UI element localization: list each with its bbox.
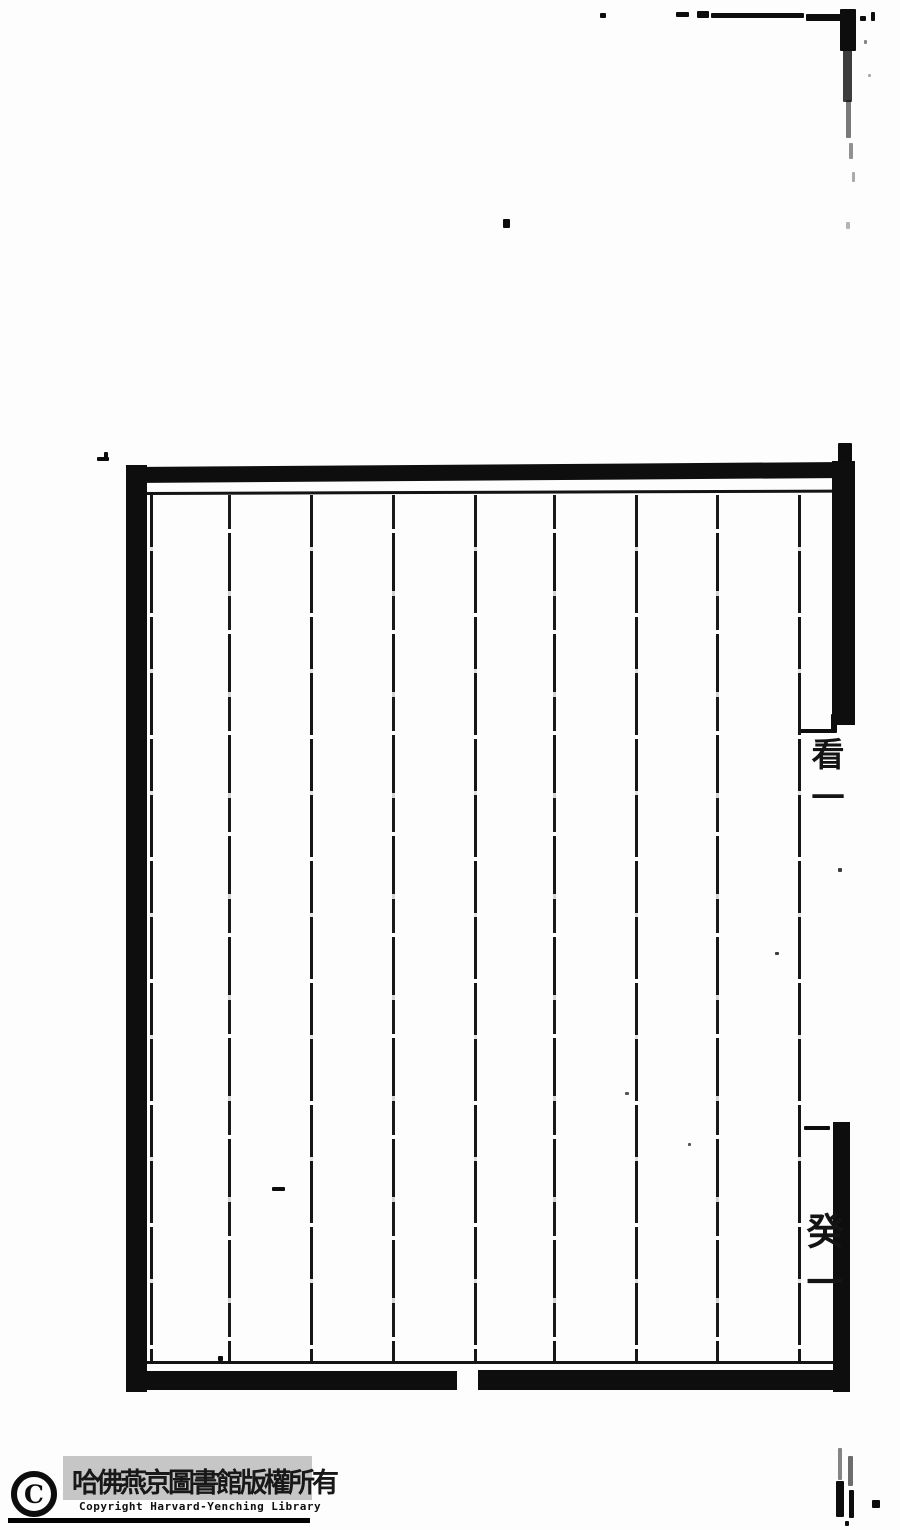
ink-mark	[804, 1126, 830, 1130]
ink-mark	[860, 16, 866, 21]
ink-mark	[625, 1092, 629, 1095]
ink-mark	[711, 13, 804, 18]
stamp-chinese-text: 哈佛燕京圖書館版權所有	[72, 1461, 312, 1500]
stamp-underline	[8, 1518, 310, 1523]
frame-left-border	[126, 465, 147, 1392]
ink-mark	[838, 443, 852, 463]
ink-mark	[838, 868, 842, 872]
frame-top-inner-line	[147, 490, 834, 495]
right-margin-label-lower: 癸一	[794, 1212, 848, 1314]
column-line	[310, 495, 313, 1361]
scanned-book-page: 看一 癸一 C 哈佛燕京圖書館版權所有 Copyright Harvard-Ye…	[0, 0, 900, 1530]
frame-bottom-border-left	[127, 1371, 457, 1390]
ink-mark	[846, 100, 851, 138]
frame-top-border	[127, 462, 849, 483]
ink-mark	[849, 143, 853, 159]
column-line	[392, 495, 395, 1361]
right-margin-label-upper: 看一	[801, 737, 849, 823]
column-line	[716, 495, 719, 1361]
frame-bottom-inner-line	[147, 1361, 833, 1364]
ink-mark	[697, 11, 709, 18]
copyright-symbol-icon: C	[11, 1471, 57, 1517]
ink-mark	[843, 50, 852, 102]
column-line	[635, 495, 638, 1361]
ink-mark	[864, 40, 867, 44]
ink-mark	[688, 1143, 691, 1146]
ink-mark	[600, 13, 606, 18]
ink-mark	[775, 952, 779, 955]
ink-mark	[849, 1490, 854, 1518]
ink-mark	[272, 1187, 285, 1191]
column-line	[553, 495, 556, 1361]
ink-mark	[838, 1448, 842, 1480]
stamp-english-text: Copyright Harvard-Yenching Library	[79, 1500, 321, 1513]
column-line	[474, 495, 477, 1361]
ink-mark	[868, 74, 871, 77]
column-line	[228, 495, 231, 1361]
ink-mark	[840, 9, 856, 51]
ink-mark	[845, 1521, 849, 1526]
ink-mark	[848, 1456, 853, 1486]
ink-mark	[104, 452, 108, 458]
ink-mark	[676, 12, 689, 17]
ink-mark	[846, 222, 850, 229]
frame-right-border-upper	[832, 461, 855, 725]
ink-mark	[836, 1481, 844, 1517]
copyright-symbol-letter: C	[24, 1480, 44, 1509]
ink-mark	[503, 219, 510, 228]
ink-mark	[852, 172, 855, 182]
frame-bottom-border-right	[478, 1370, 846, 1390]
ink-mark	[871, 12, 875, 21]
column-line	[150, 495, 153, 1361]
ink-mark	[872, 1500, 880, 1508]
